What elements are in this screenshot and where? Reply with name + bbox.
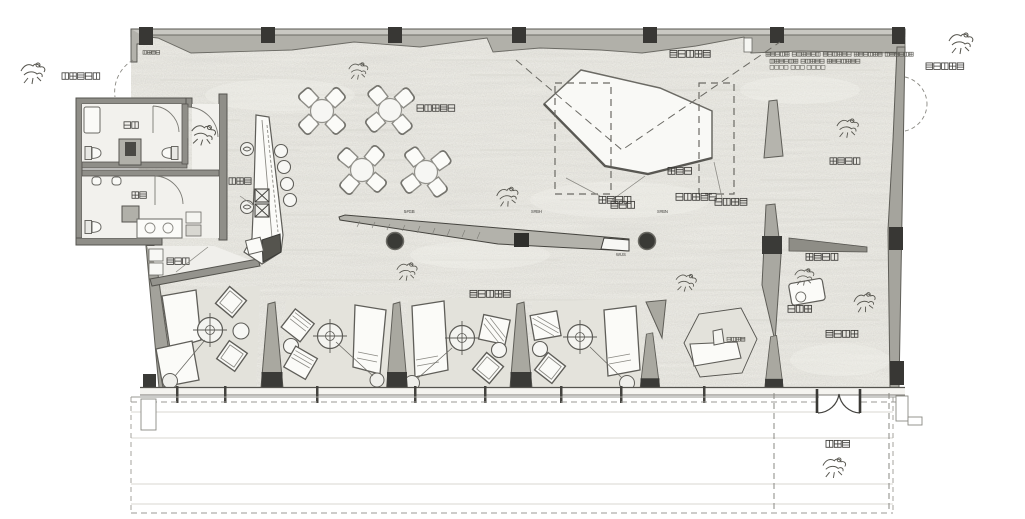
svg-text:S#BN: S#BN (657, 209, 668, 214)
svg-text:WUS: WUS (616, 252, 626, 257)
svg-text:S#BH: S#BH (531, 209, 542, 214)
svg-text:5#GB: 5#GB (404, 209, 415, 214)
